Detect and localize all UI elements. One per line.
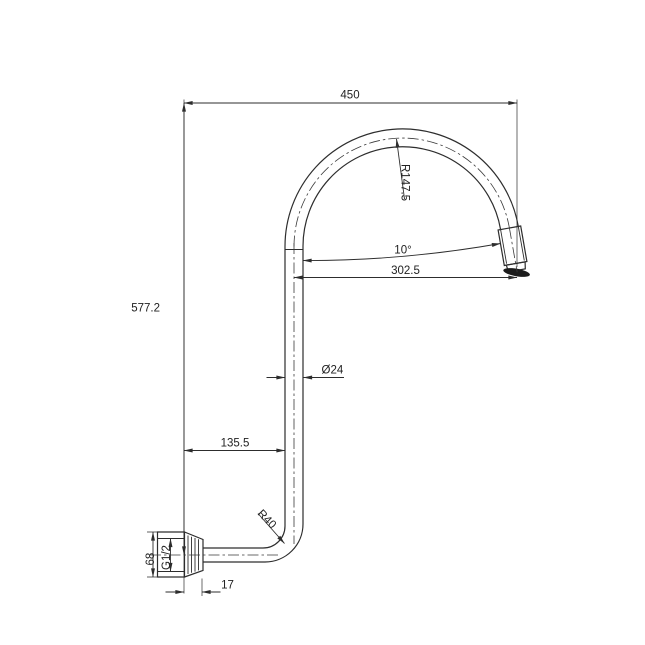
dim-overall-height: 577.2 xyxy=(131,103,184,555)
dim-overall-width: 450 xyxy=(184,90,517,104)
dim-thread-size-label: G1/2 xyxy=(161,545,173,570)
dim-elbow-radius: R40 xyxy=(255,508,285,544)
dim-wall-to-pipe-label: 135.5 xyxy=(221,438,250,450)
dim-flange-depth-label: 17 xyxy=(221,580,234,592)
dim-pipe-diameter: Ø24 xyxy=(267,365,345,378)
dim-overall-width-label: 450 xyxy=(340,90,359,102)
spout-tip xyxy=(498,226,530,279)
dim-flange-depth: 17 xyxy=(166,580,234,593)
dim-flange-size-label: 68 xyxy=(145,553,157,566)
dim-overall-height-label: 577.2 xyxy=(131,303,160,315)
dim-flange-size: 68 xyxy=(145,532,157,577)
dim-arc-radius-label: R147.5 xyxy=(399,164,411,201)
dim-horizontal-reach-label: 302.5 xyxy=(391,265,420,277)
dim-arc-radius: R147.5 xyxy=(397,139,411,201)
dim-pipe-diameter-label: Ø24 xyxy=(322,365,344,377)
extension-lines xyxy=(147,100,517,597)
dim-wall-to-pipe: 135.5 xyxy=(184,438,285,451)
dim-horizontal-reach: 302.5 xyxy=(294,265,517,278)
dim-spout-angle: 10° xyxy=(303,244,501,261)
dim-elbow-radius-label: R40 xyxy=(255,508,278,532)
shower-arm-outline xyxy=(158,129,531,577)
drawing-canvas: 450 577.2 R147.5 10° 302.5 Ø24 135.5 R40… xyxy=(0,0,645,645)
dim-thread-size: G1/2 xyxy=(161,539,173,572)
dim-spout-angle-label: 10° xyxy=(394,245,411,257)
technical-drawing: 450 577.2 R147.5 10° 302.5 Ø24 135.5 R40… xyxy=(0,0,645,645)
centerlines xyxy=(150,138,517,555)
pipe-body xyxy=(203,247,303,563)
